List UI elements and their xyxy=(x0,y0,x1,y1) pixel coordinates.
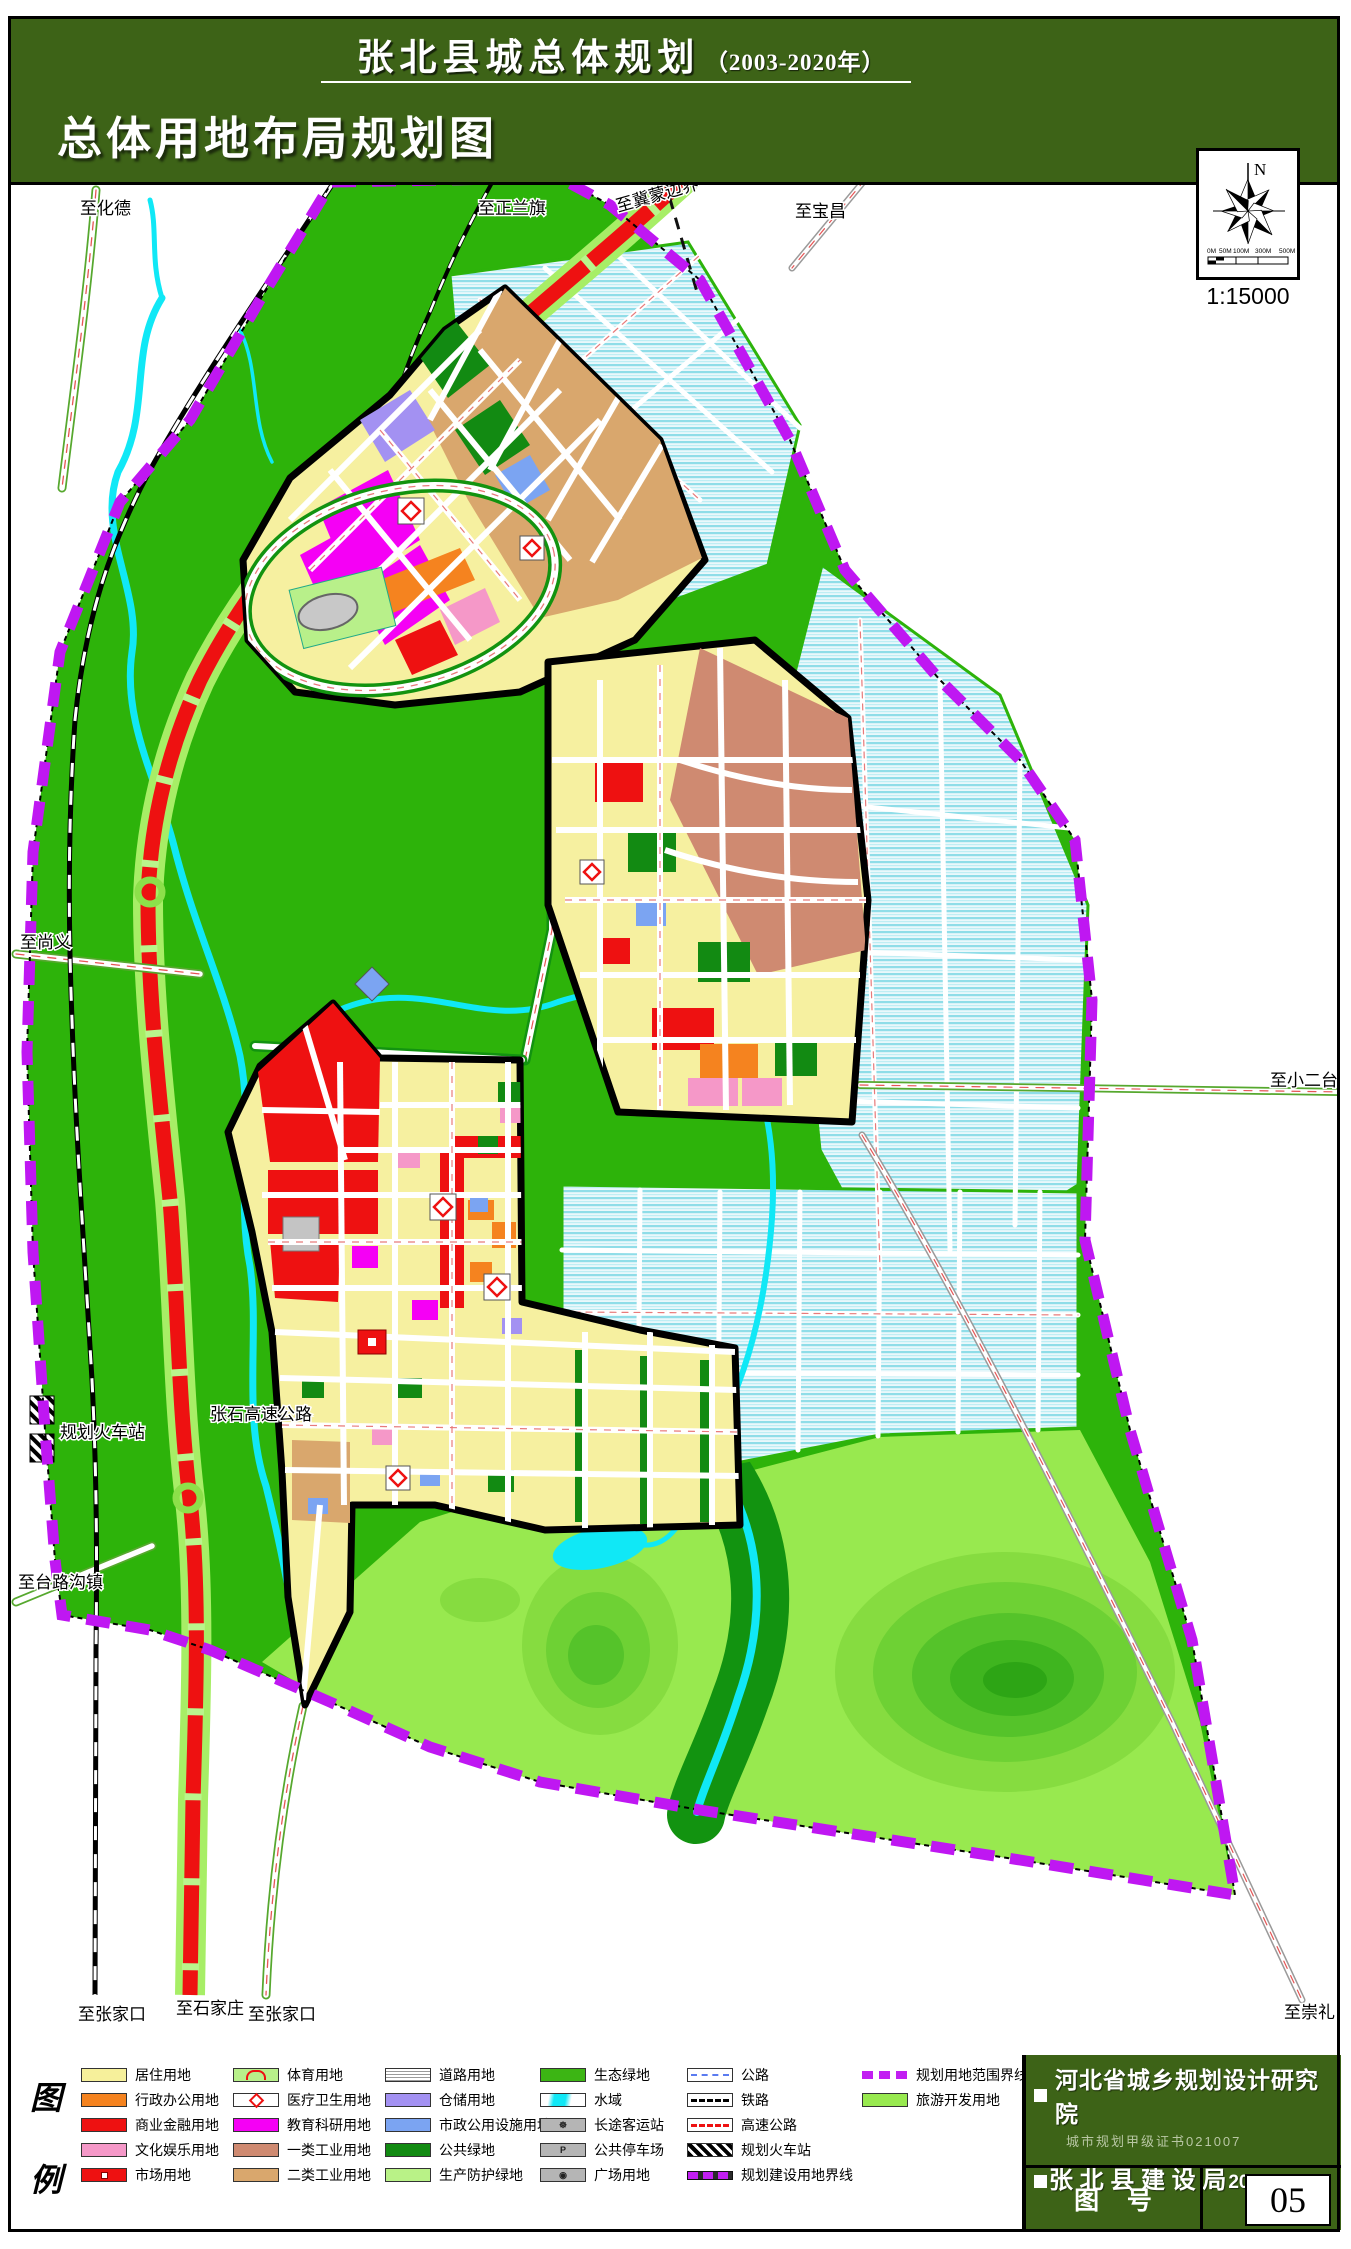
drawing-no-label: 图 号 xyxy=(1026,2168,1203,2230)
construction-boundary-swatch xyxy=(687,2171,733,2180)
medical-swatch xyxy=(233,2093,279,2107)
legend-item: 铁路 xyxy=(687,2092,862,2108)
hospital-icon xyxy=(580,860,604,884)
roadland-swatch xyxy=(385,2068,431,2082)
market-swatch xyxy=(81,2168,127,2182)
railway-swatch xyxy=(687,2093,733,2107)
scope-boundary-swatch xyxy=(862,2071,908,2079)
hospital-icon xyxy=(484,1274,510,1300)
road-label: 至张家口 xyxy=(78,2005,146,2024)
parking-lot xyxy=(283,1217,319,1251)
industry2-swatch xyxy=(233,2168,279,2182)
station-label: 规划火车站 xyxy=(60,1423,145,1442)
plaza-icon: ◉ xyxy=(559,2171,567,2180)
legend-item: 市场用地 xyxy=(81,2167,233,2183)
hospital-icon xyxy=(398,498,424,524)
map-scale: 1:15000 xyxy=(1178,283,1318,310)
legend-item: 仓储用地 xyxy=(385,2092,540,2108)
legend-item: 居住用地 xyxy=(81,2067,233,2083)
legend-title: 图 例 xyxy=(11,2055,81,2230)
legend-item: 生态绿地 xyxy=(540,2067,687,2083)
hospital-icon xyxy=(430,1194,456,1220)
admin-swatch xyxy=(81,2093,127,2107)
public-green-swatch xyxy=(385,2143,431,2157)
legend-item: 二类工业用地 xyxy=(233,2167,385,2183)
drawing-number: 05 xyxy=(1245,2174,1331,2226)
legend-item: ☸长途客运站 xyxy=(540,2117,687,2133)
market-icon xyxy=(358,1330,386,1354)
protective-green-swatch xyxy=(385,2168,431,2182)
commercial-swatch xyxy=(81,2118,127,2132)
road-label: 至石家庄 xyxy=(176,1999,244,2018)
legend-item: 道路用地 xyxy=(385,2067,540,2083)
compass-box: N 0M 50M 100M 300M 500M xyxy=(1196,148,1300,280)
page-title-years: （2003-2020年） xyxy=(705,50,886,75)
residential-swatch xyxy=(81,2068,127,2082)
legend-item: 教育科研用地 xyxy=(233,2117,385,2133)
road-label: 至张家口 xyxy=(248,2005,316,2024)
legend-item: 一类工业用地 xyxy=(233,2142,385,2158)
title-band: 张北县城总体规划 （2003-2020年） xyxy=(11,19,1340,88)
education-swatch xyxy=(233,2118,279,2132)
legend-item: 医疗卫生用地 xyxy=(233,2092,385,2108)
road-label: 至尚义 xyxy=(20,933,71,952)
cultural-swatch xyxy=(81,2143,127,2157)
svg-text:500M: 500M xyxy=(1279,248,1295,255)
eco-green-swatch xyxy=(540,2068,586,2082)
highway-swatch xyxy=(687,2068,733,2082)
legend-item: 行政办公用地 xyxy=(81,2092,233,2108)
road-label: 至化德 xyxy=(80,199,131,218)
parking-icon: P xyxy=(560,2146,566,2155)
hospital-icon xyxy=(520,536,544,560)
legend-item: 高速公路 xyxy=(687,2117,862,2133)
svg-text:N: N xyxy=(1254,160,1266,179)
bus-wheel-icon: ☸ xyxy=(559,2121,567,2130)
page-title: 张北县城总体规划 xyxy=(356,38,700,79)
svg-text:300M: 300M xyxy=(1255,248,1271,255)
station-swatch xyxy=(687,2143,733,2157)
plan-sheet: { "header": { "title": "张北县城总体规划", "titl… xyxy=(0,0,1351,2249)
legend-item: 旅游开发用地 xyxy=(862,2092,1022,2108)
legend-item: 体育用地 xyxy=(233,2067,385,2083)
legend-item: 水域 xyxy=(540,2092,687,2108)
svg-text:100M: 100M xyxy=(1233,248,1249,255)
subtitle-band: 总体用地布局规划图 xyxy=(11,88,1340,185)
legend-item: 生产防护绿地 xyxy=(385,2167,540,2183)
road-label: 至小二台 xyxy=(1270,1071,1338,1090)
district-east xyxy=(548,640,868,1122)
warehouse-swatch xyxy=(385,2093,431,2107)
title-underline xyxy=(321,81,911,83)
hospital-icon xyxy=(386,1466,410,1490)
municipal-swatch xyxy=(385,2118,431,2132)
map-subtitle: 总体用地布局规划图 xyxy=(57,102,498,167)
plaza-swatch: ◉ xyxy=(540,2168,586,2182)
land-use-map: 至化德 至正兰旗 至冀蒙边界 至宝昌 至尚义 张石高速公路 规划火车站 至台路沟… xyxy=(11,185,1340,2055)
certificate-text: 城市规划甲级证书021007 xyxy=(1066,2131,1341,2150)
legend-item: 商业金融用地 xyxy=(81,2117,233,2133)
legend-item: 公共绿地 xyxy=(385,2142,540,2158)
scale-bar-icon xyxy=(1208,257,1288,264)
legend-item: 市政公用设施用地 xyxy=(385,2117,540,2133)
bullet-square-icon xyxy=(1034,2089,1047,2102)
legend-item: 规划用地范围界线 xyxy=(862,2067,1022,2083)
contour-hill-east xyxy=(835,1552,1175,1792)
legend-item: ◉广场用地 xyxy=(540,2167,687,2183)
sports-swatch xyxy=(233,2068,279,2082)
institute-name: 河北省城乡规划设计研究院 xyxy=(1055,2061,1333,2129)
bus-station-swatch: ☸ xyxy=(540,2118,586,2132)
expressway-swatch xyxy=(687,2118,733,2132)
svg-text:50M: 50M xyxy=(1219,248,1232,255)
industry1-swatch xyxy=(233,2143,279,2157)
road-label: 至台路沟镇 xyxy=(18,1573,103,1592)
legend-panel: 图 例 居住用地 行政办公用地 商业金融用地 文化娱乐用地 市场用地 体育用地 … xyxy=(11,2055,1022,2230)
road-label: 至宝昌 xyxy=(795,202,846,221)
tourism-swatch xyxy=(862,2093,908,2107)
parking-swatch: P xyxy=(540,2143,586,2157)
water-swatch xyxy=(540,2093,586,2107)
title-block: 河北省城乡规划设计研究院 城市规划甲级证书021007 张 北 县 建 设 局2… xyxy=(1022,2055,1341,2230)
road-label: 张石高速公路 xyxy=(210,1405,312,1424)
road-label: 至正兰旗 xyxy=(478,199,546,218)
road-label: 至崇礼 xyxy=(1284,2003,1335,2022)
legend-item: 规划火车站 xyxy=(687,2142,862,2158)
legend-item: P公共停车场 xyxy=(540,2142,687,2158)
svg-text:0M: 0M xyxy=(1207,248,1216,255)
legend-item: 规划建设用地界线 xyxy=(687,2167,862,2183)
legend-item: 文化娱乐用地 xyxy=(81,2142,233,2158)
legend-item: 公路 xyxy=(687,2067,862,2083)
compass-rose-icon: N 0M 50M 100M 300M 500M xyxy=(1199,151,1297,277)
